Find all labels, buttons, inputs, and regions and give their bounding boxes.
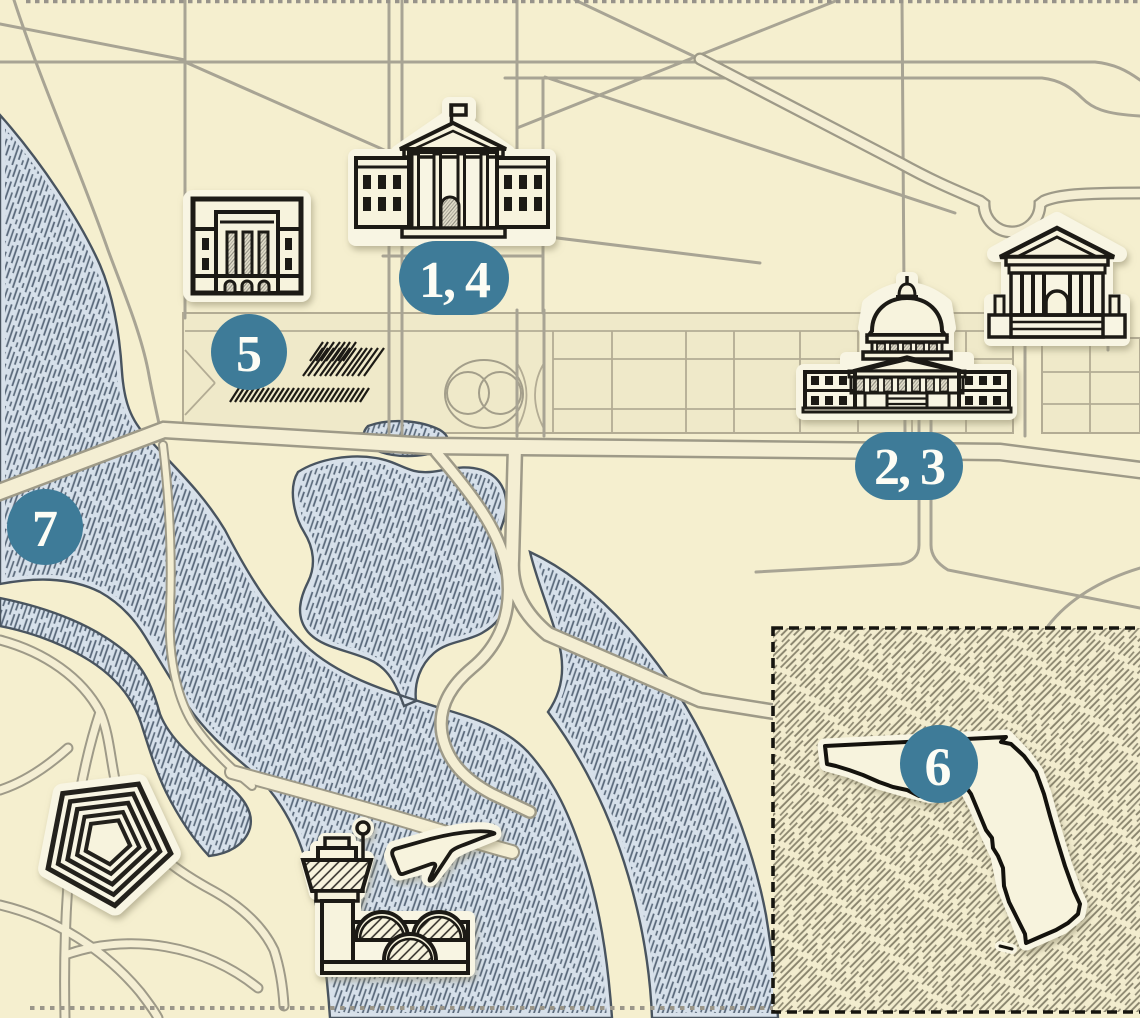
svg-text:2, 3: 2, 3 — [874, 439, 945, 496]
svg-text:6: 6 — [925, 737, 952, 797]
svg-text:7: 7 — [32, 501, 58, 558]
svg-text:5: 5 — [236, 326, 262, 383]
svg-text:1, 4: 1, 4 — [419, 252, 491, 309]
